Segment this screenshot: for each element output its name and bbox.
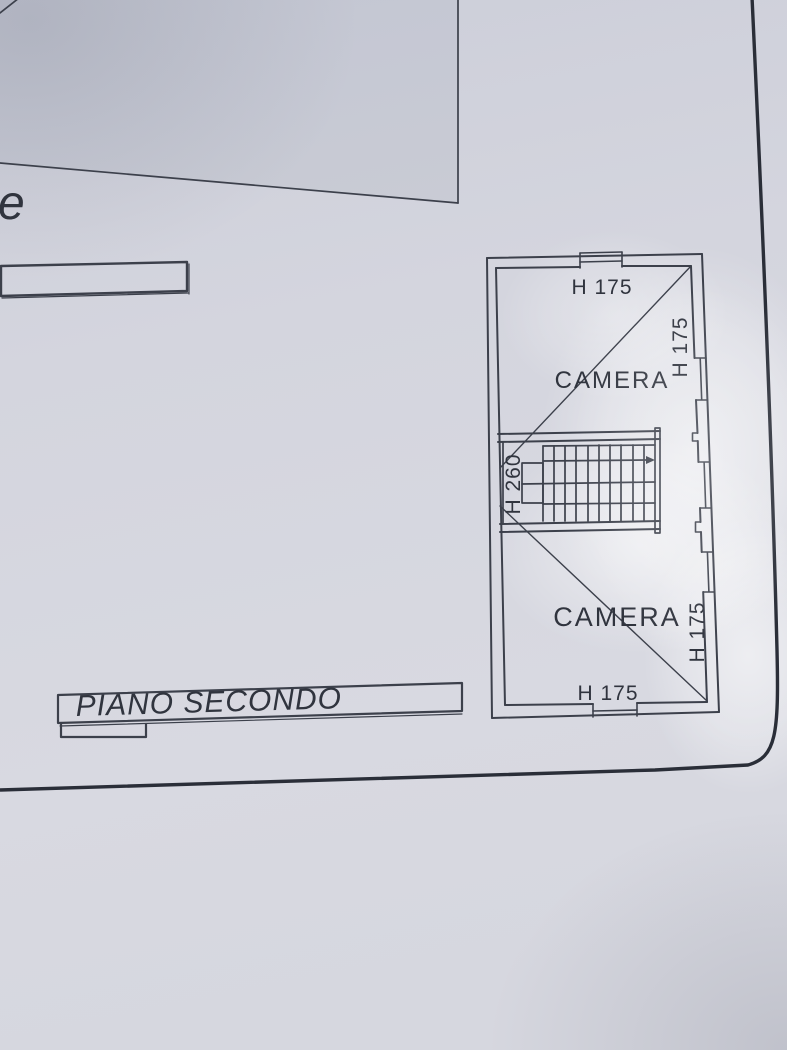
- height-label-top: H 175: [571, 276, 632, 299]
- upper-sheet-fragment-letter: e: [0, 177, 25, 230]
- height-label-bottom: H 175: [577, 682, 638, 705]
- floor-plan-photo: e H 175 H 175 CAMERA H 260 CAMERA H 175 …: [0, 0, 787, 1050]
- height-label-stair: H 260: [502, 453, 525, 514]
